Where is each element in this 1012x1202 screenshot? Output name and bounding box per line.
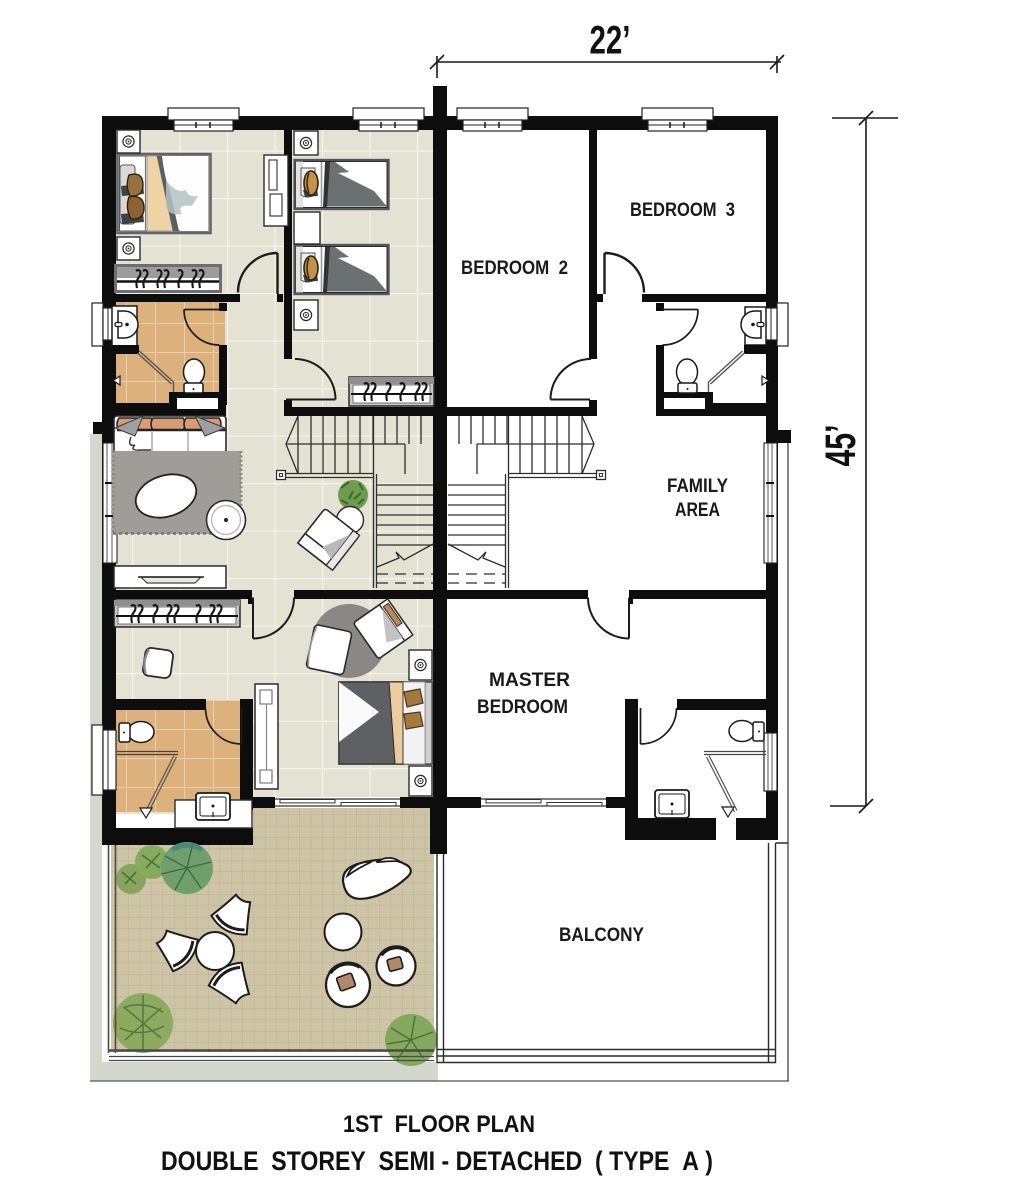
- svg-text:AREA: AREA: [675, 499, 720, 521]
- svg-text:MASTER: MASTER: [489, 669, 570, 691]
- svg-text:BEDROOM: BEDROOM: [477, 696, 568, 718]
- svg-text:BEDROOM 2: BEDROOM 2: [461, 257, 568, 279]
- svg-text:FAMILY: FAMILY: [667, 475, 728, 497]
- svg-text:BALCONY: BALCONY: [559, 924, 644, 946]
- svg-text:DOUBLE STOREY SEMI - DETACHE: DOUBLE STOREY SEMI - DETACHED ( TYPE A ): [161, 1146, 713, 1176]
- svg-text:BEDROOM 3: BEDROOM 3: [630, 199, 735, 221]
- svg-text:45’: 45’: [817, 425, 865, 467]
- svg-text:22’: 22’: [590, 19, 631, 63]
- svg-text:1ST FLOOR PLAN: 1ST FLOOR PLAN: [343, 1111, 535, 1138]
